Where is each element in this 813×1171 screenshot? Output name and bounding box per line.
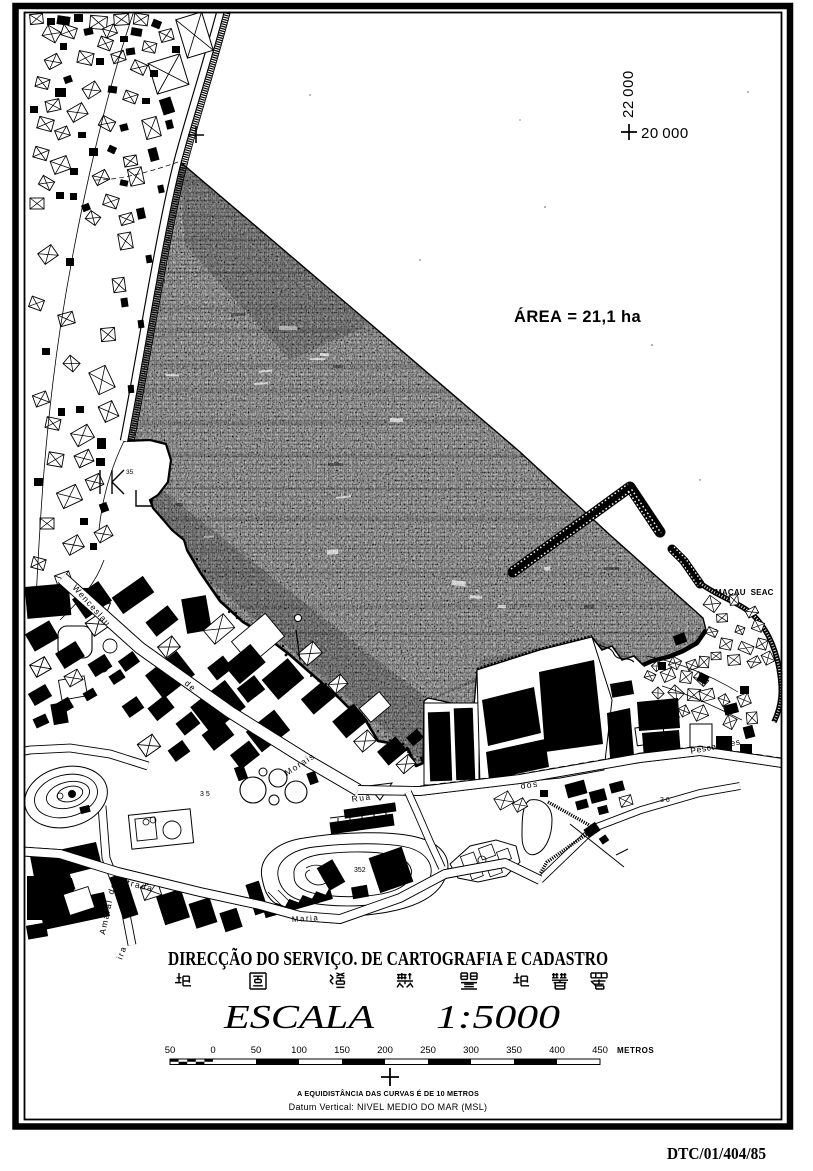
svg-text:100: 100 (291, 1045, 307, 1056)
svg-text:50: 50 (251, 1045, 262, 1056)
svg-text:0: 0 (210, 1045, 215, 1056)
svg-text:ÁREA = 21,1 ha: ÁREA = 21,1 ha (514, 307, 642, 326)
svg-text:DIRECÇÃO DO SERVIÇO. DE CARTOG: DIRECÇÃO DO SERVIÇO. DE CARTOGRAFIA E CA… (168, 948, 608, 970)
svg-text:20 000: 20 000 (641, 125, 689, 142)
svg-text:450: 450 (592, 1045, 608, 1056)
svg-text:400: 400 (549, 1045, 565, 1056)
svg-text:35: 35 (126, 469, 134, 476)
svg-text:36: 36 (660, 797, 672, 804)
svg-text:ESCALA: ESCALA (223, 999, 375, 1036)
svg-text:200: 200 (377, 1045, 393, 1056)
svg-text:A EQUIDISTÂNCIA DAS CURVAS É D: A EQUIDISTÂNCIA DAS CURVAS É DE 10 METRO… (297, 1089, 479, 1098)
svg-text:350: 350 (506, 1045, 522, 1056)
svg-text:73: 73 (34, 927, 46, 934)
svg-text:Maria: Maria (292, 913, 320, 924)
svg-text:22 000: 22 000 (620, 70, 637, 118)
svg-text:35: 35 (200, 791, 212, 798)
svg-text:300: 300 (463, 1045, 479, 1056)
svg-text:1:5000: 1:5000 (436, 999, 560, 1036)
svg-text:METROS: METROS (617, 1046, 654, 1055)
svg-text:50: 50 (165, 1045, 176, 1056)
svg-text:MACAU SEAC: MACAU SEAC (715, 588, 774, 597)
svg-text:DTC/01/404/85: DTC/01/404/85 (667, 1144, 766, 1163)
svg-text:352: 352 (354, 867, 366, 874)
svg-text:150: 150 (334, 1045, 350, 1056)
svg-text:250: 250 (420, 1045, 436, 1056)
svg-text:Datum Vertical: NIVEL MEDIO DO: Datum Vertical: NIVEL MEDIO DO MAR (MSL) (289, 1102, 488, 1112)
